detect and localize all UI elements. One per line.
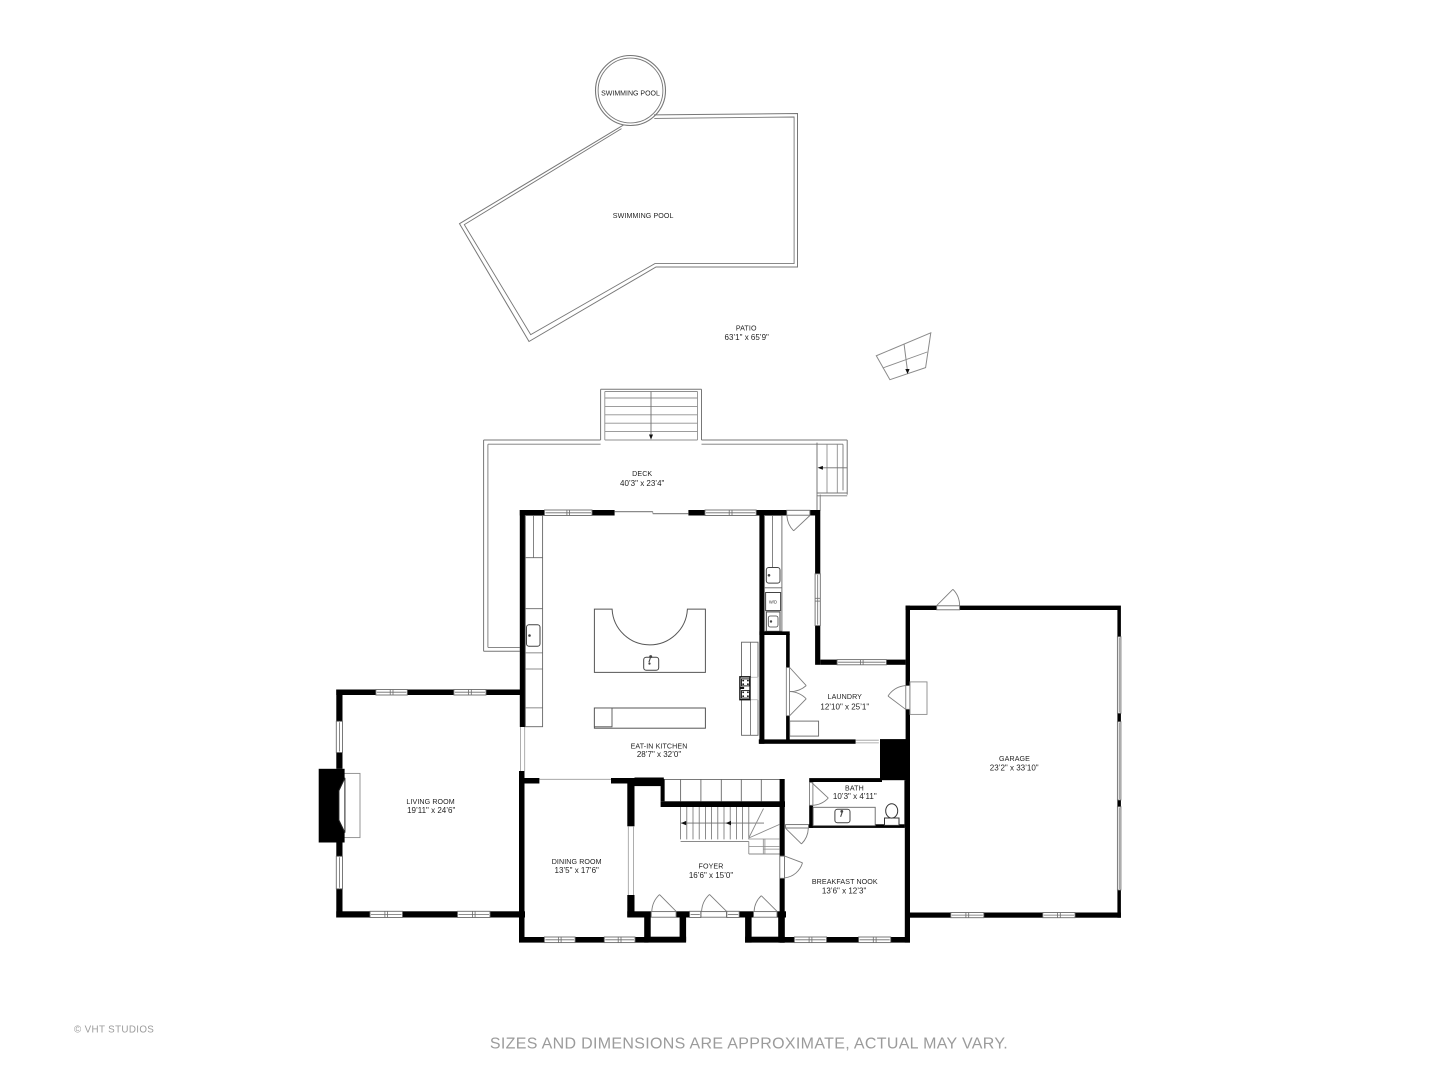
svg-text:63’1" x 65’9": 63’1" x 65’9" (725, 333, 770, 342)
svg-text:19’11" x 24’6": 19’11" x 24’6" (407, 806, 455, 815)
svg-text:EAT-IN KITCHEN: EAT-IN KITCHEN (631, 742, 688, 750)
svg-text:© VHT STUDIOS: © VHT STUDIOS (74, 1024, 154, 1035)
svg-text:SWIMMING POOL: SWIMMING POOL (601, 91, 660, 98)
svg-text:12’10" x 25’1": 12’10" x 25’1" (820, 703, 869, 712)
svg-text:13’5" x 17’6": 13’5" x 17’6" (555, 866, 600, 875)
svg-text:DECK: DECK (632, 470, 652, 478)
svg-text:PATIO: PATIO (736, 325, 757, 333)
svg-text:DINING ROOM: DINING ROOM (552, 858, 602, 866)
svg-text:GARAGE: GARAGE (999, 755, 1030, 763)
svg-text:LIVING ROOM: LIVING ROOM (406, 798, 454, 806)
svg-text:10’3" x 4’11": 10’3" x 4’11" (833, 792, 877, 801)
svg-text:LAUNDRY: LAUNDRY (828, 693, 863, 701)
svg-text:28’7" x 32’0": 28’7" x 32’0" (637, 750, 682, 759)
svg-text:40’3" x 23’4": 40’3" x 23’4" (620, 479, 665, 488)
svg-text:16’6" x 15’0": 16’6" x 15’0" (689, 871, 734, 880)
svg-text:SIZES AND DIMENSIONS ARE APPRO: SIZES AND DIMENSIONS ARE APPROXIMATE, AC… (490, 1036, 1008, 1053)
svg-text:13’6" x 12’3": 13’6" x 12’3" (822, 886, 867, 895)
svg-text:BREAKFAST NOOK: BREAKFAST NOOK (812, 878, 878, 886)
svg-text:BATH: BATH (845, 784, 864, 792)
svg-text:FOYER: FOYER (699, 863, 724, 871)
svg-text:W/D: W/D (769, 599, 777, 604)
svg-text:SWIMMING POOL: SWIMMING POOL (613, 212, 674, 220)
svg-text:23’2" x 33’10": 23’2" x 33’10" (990, 763, 1039, 772)
